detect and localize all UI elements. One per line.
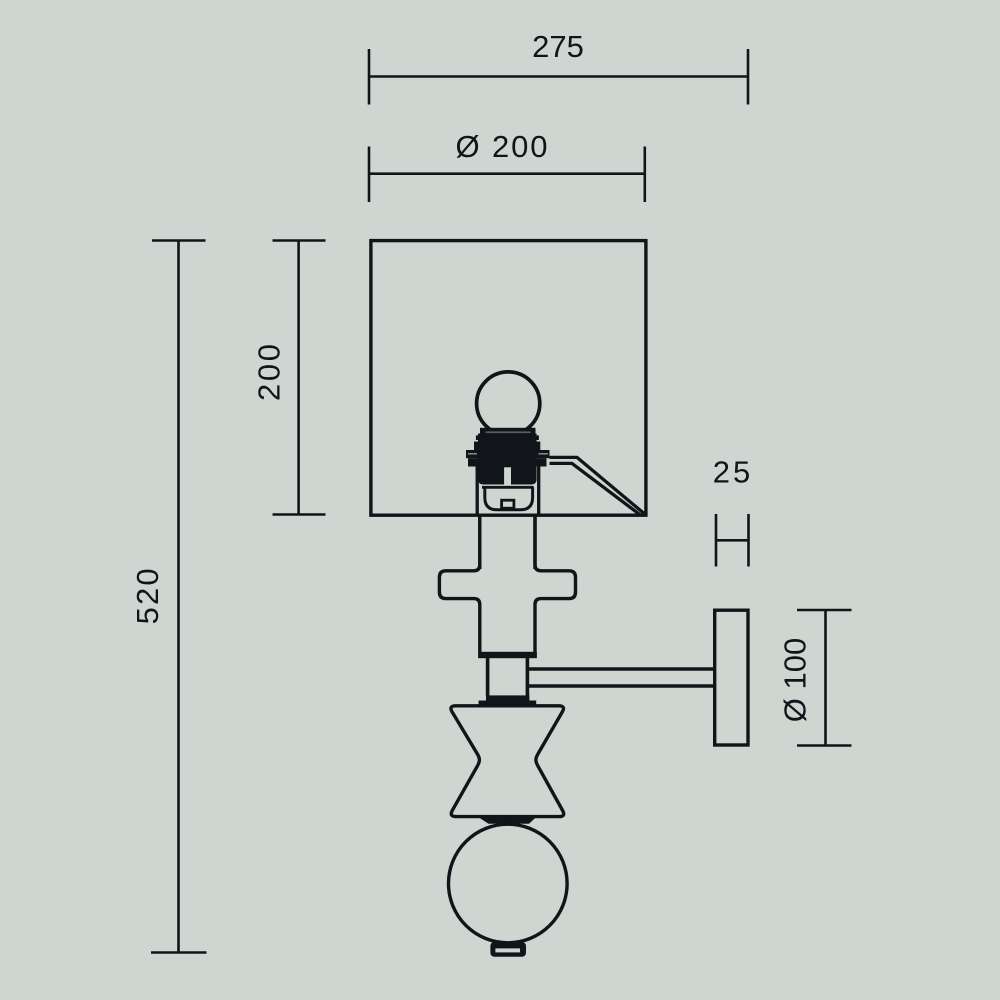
svg-text:520: 520	[130, 568, 165, 624]
svg-text:Ø 200: Ø 200	[456, 129, 548, 164]
svg-text:275: 275	[532, 29, 584, 64]
svg-text:Ø 100: Ø 100	[777, 638, 812, 722]
svg-text:200: 200	[251, 344, 286, 401]
